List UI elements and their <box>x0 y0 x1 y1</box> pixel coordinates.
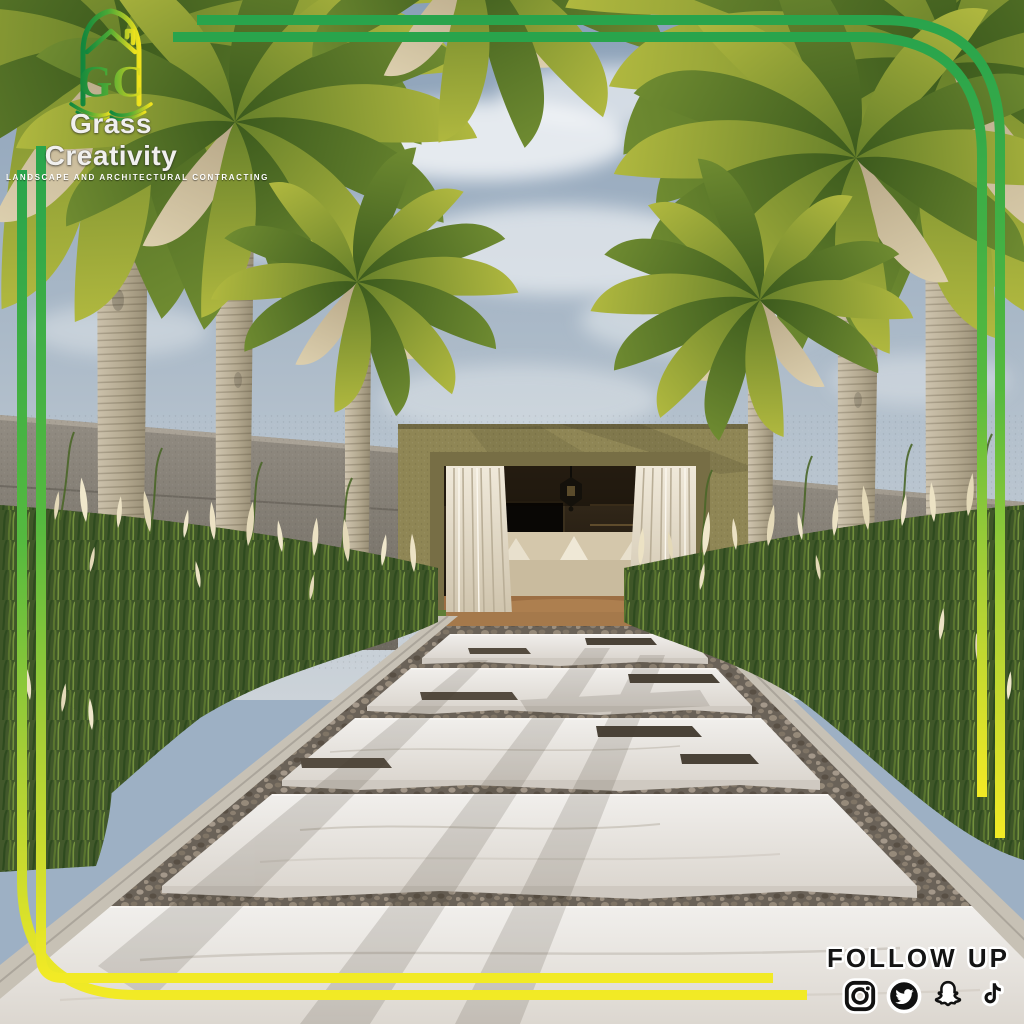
social-icons <box>827 978 1010 1014</box>
curtain-left <box>446 466 512 614</box>
brand-monogram: GC <box>78 57 144 106</box>
snapchat-icon <box>930 978 966 1014</box>
social-post: GC Grass Creativity LANDSCAPE AND ARCHIT… <box>0 0 1024 1024</box>
brand-emblem: GC <box>11 4 211 122</box>
brand-name: Grass Creativity <box>6 108 216 172</box>
brand-logo: GC Grass Creativity LANDSCAPE AND ARCHIT… <box>6 4 216 182</box>
social-footer: FOLLOW UP <box>827 943 1010 1014</box>
twitter-icon <box>886 978 922 1014</box>
house-roof-icon <box>87 31 135 52</box>
slab-row <box>422 634 708 666</box>
brand-tagline: LANDSCAPE AND ARCHITECTURAL CONTRACTING <box>6 173 216 182</box>
instagram-icon <box>842 978 878 1014</box>
tiktok-icon <box>974 978 1010 1014</box>
follow-up-label: FOLLOW UP <box>827 943 1010 974</box>
